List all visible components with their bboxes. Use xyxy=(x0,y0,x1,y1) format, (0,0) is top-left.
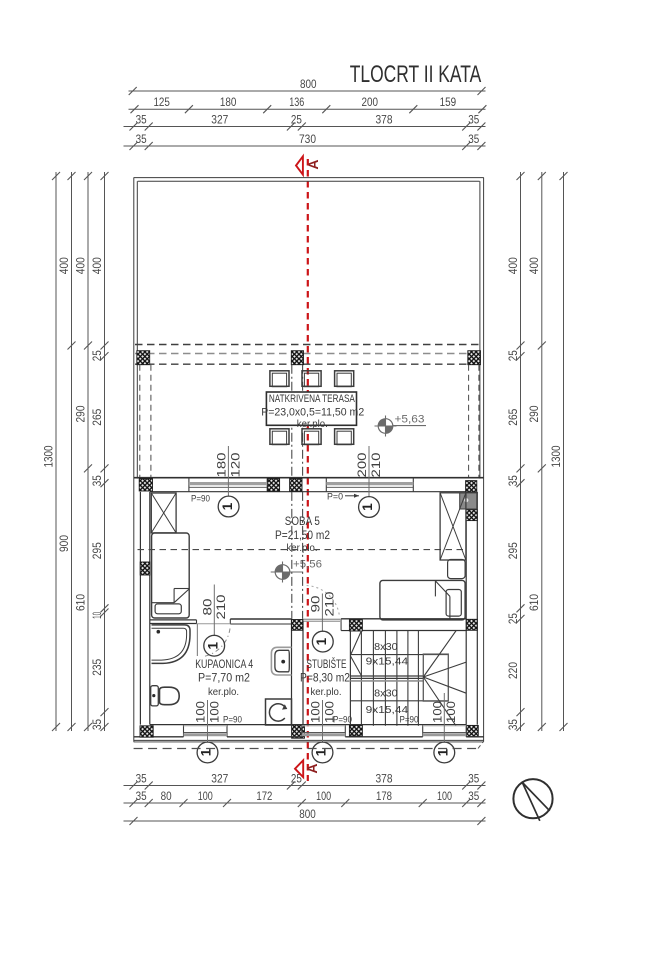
svg-text:378: 378 xyxy=(376,113,393,127)
svg-text:8x30: 8x30 xyxy=(374,642,398,653)
svg-text:100: 100 xyxy=(444,701,458,723)
svg-text:172: 172 xyxy=(256,789,272,803)
svg-text:290: 290 xyxy=(527,405,541,422)
svg-text:100: 100 xyxy=(437,789,452,803)
svg-text:159: 159 xyxy=(440,95,457,109)
svg-text:35: 35 xyxy=(90,475,104,486)
svg-text:A: A xyxy=(304,764,320,774)
svg-text:180: 180 xyxy=(220,95,237,109)
svg-text:610: 610 xyxy=(527,594,541,611)
svg-text:400: 400 xyxy=(527,257,541,274)
svg-text:290: 290 xyxy=(73,405,87,422)
svg-text:35: 35 xyxy=(468,113,479,127)
svg-text:1: 1 xyxy=(314,748,329,756)
svg-text:1: 1 xyxy=(205,641,220,649)
svg-text:1: 1 xyxy=(436,748,451,756)
svg-text:180: 180 xyxy=(215,452,229,477)
svg-text:25: 25 xyxy=(90,350,104,361)
svg-text:327: 327 xyxy=(211,772,228,786)
svg-text:80: 80 xyxy=(161,789,172,803)
svg-text:220: 220 xyxy=(506,662,520,679)
svg-text:100: 100 xyxy=(316,789,331,803)
svg-text:35: 35 xyxy=(468,789,479,803)
svg-text:P=0: P=0 xyxy=(327,492,343,502)
svg-text:100: 100 xyxy=(309,701,323,723)
svg-text:1: 1 xyxy=(360,503,375,511)
svg-text:25: 25 xyxy=(506,350,520,361)
svg-text:400: 400 xyxy=(57,257,71,274)
svg-text:10: 10 xyxy=(90,612,104,619)
svg-text:900: 900 xyxy=(57,535,71,552)
svg-text:KUPAONICA 4: KUPAONICA 4 xyxy=(195,657,253,671)
svg-text:200: 200 xyxy=(362,95,379,109)
svg-text:35: 35 xyxy=(136,132,147,146)
svg-text:178: 178 xyxy=(376,789,392,803)
svg-text:35: 35 xyxy=(506,719,520,730)
svg-text:235: 235 xyxy=(90,659,104,676)
svg-text:35: 35 xyxy=(136,789,147,803)
svg-text:STUBIŠTE: STUBIŠTE xyxy=(307,657,347,671)
svg-text:P=8,30 m2: P=8,30 m2 xyxy=(300,671,350,685)
svg-text:800: 800 xyxy=(300,77,317,91)
svg-text:400: 400 xyxy=(506,257,520,274)
svg-text:610: 610 xyxy=(73,594,87,611)
svg-text:120: 120 xyxy=(228,452,242,477)
svg-text:136: 136 xyxy=(289,95,304,109)
svg-text:25: 25 xyxy=(291,113,302,127)
svg-text:100: 100 xyxy=(207,701,221,723)
svg-text:200: 200 xyxy=(355,452,369,477)
svg-text:265: 265 xyxy=(90,408,104,425)
svg-text:100: 100 xyxy=(430,701,444,723)
svg-text:25: 25 xyxy=(506,613,520,624)
svg-text:1: 1 xyxy=(220,502,235,510)
svg-text:8x30: 8x30 xyxy=(374,689,398,700)
svg-text:295: 295 xyxy=(506,542,520,559)
svg-text:125: 125 xyxy=(153,95,170,109)
svg-text:35: 35 xyxy=(90,719,104,730)
svg-text:35: 35 xyxy=(468,132,479,146)
svg-text:P=90: P=90 xyxy=(333,714,352,724)
svg-text:210: 210 xyxy=(214,594,228,619)
svg-text:9x15,44: 9x15,44 xyxy=(366,656,409,667)
svg-text:210: 210 xyxy=(322,591,336,616)
svg-text:P=90: P=90 xyxy=(191,494,210,504)
svg-text:35: 35 xyxy=(506,475,520,486)
svg-text:P=23,0x0,5=11,50 m2: P=23,0x0,5=11,50 m2 xyxy=(261,406,364,418)
svg-text:NATKRIVENA TERASA: NATKRIVENA TERASA xyxy=(269,393,356,405)
svg-text:800: 800 xyxy=(299,807,316,821)
svg-text:210: 210 xyxy=(369,452,383,477)
svg-text:+5,56: +5,56 xyxy=(293,558,322,570)
svg-text:400: 400 xyxy=(73,257,87,274)
svg-text:P=90: P=90 xyxy=(400,714,419,724)
svg-text:1: 1 xyxy=(314,637,329,645)
svg-text:+5,63: +5,63 xyxy=(395,413,425,425)
svg-text:ker.plo.: ker.plo. xyxy=(208,687,239,698)
svg-text:327: 327 xyxy=(211,113,228,127)
svg-text:P=90: P=90 xyxy=(223,714,242,724)
svg-text:100: 100 xyxy=(198,789,213,803)
svg-text:ker.plo.: ker.plo. xyxy=(311,687,342,698)
svg-text:1300: 1300 xyxy=(549,445,563,467)
svg-text:ker.plo.: ker.plo. xyxy=(287,543,318,554)
svg-text:90: 90 xyxy=(309,595,323,612)
svg-text:1300: 1300 xyxy=(41,445,55,467)
svg-text:A: A xyxy=(305,160,321,170)
svg-text:378: 378 xyxy=(376,772,393,786)
svg-text:100: 100 xyxy=(194,701,208,723)
svg-text:35: 35 xyxy=(136,113,147,127)
svg-text:400: 400 xyxy=(90,257,104,274)
svg-text:1: 1 xyxy=(199,748,214,756)
svg-text:730: 730 xyxy=(299,132,316,146)
svg-text:TLOCRT II KATA: TLOCRT II KATA xyxy=(350,61,482,88)
svg-text:295: 295 xyxy=(90,542,104,559)
svg-text:35: 35 xyxy=(468,772,479,786)
svg-text:35: 35 xyxy=(136,772,147,786)
svg-text:80: 80 xyxy=(200,598,214,615)
svg-text:265: 265 xyxy=(506,408,520,425)
svg-text:P=7,70 m2: P=7,70 m2 xyxy=(198,671,250,685)
